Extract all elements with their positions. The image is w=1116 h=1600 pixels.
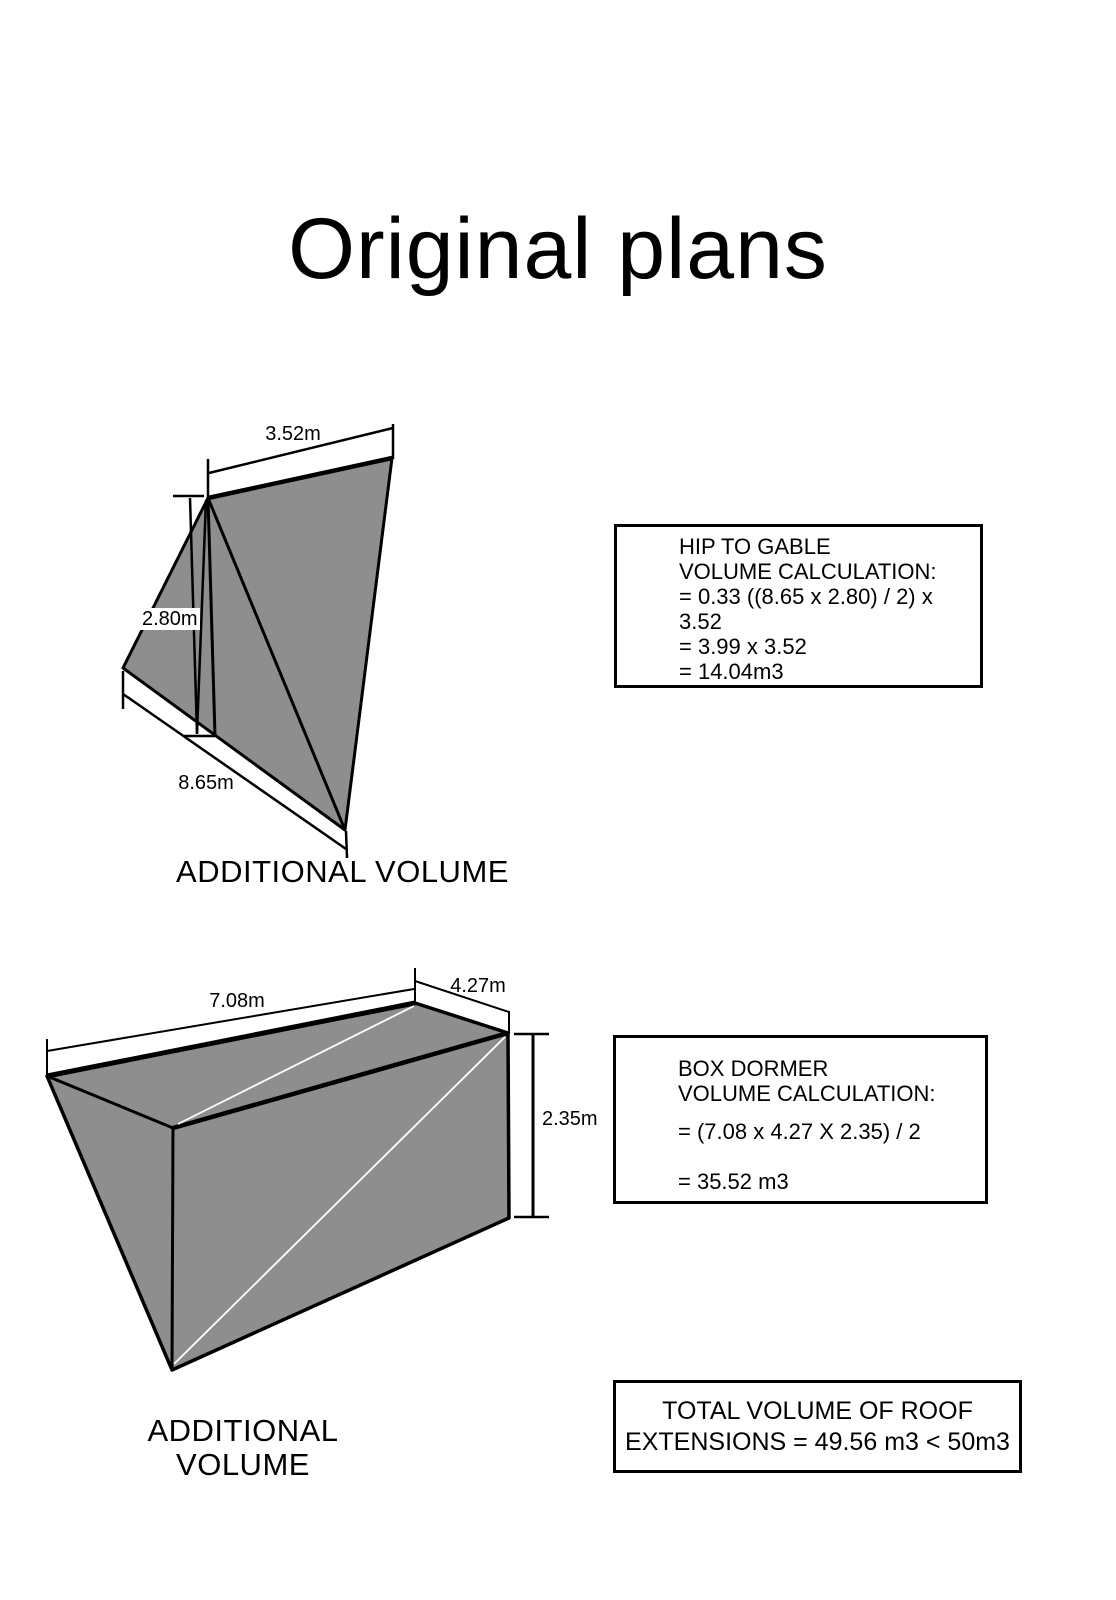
calc-heading: BOX DORMER — [678, 1056, 979, 1081]
dim-label-bottom-width: 8.65m — [170, 772, 242, 794]
calc-heading: VOLUME CALCULATION: — [678, 1081, 979, 1106]
hip-to-gable-body — [123, 458, 392, 830]
calc-step: = 0.33 ((8.65 x 2.80) / 2) x 3.52 — [679, 584, 974, 634]
hip-to-gable-calc-box: HIP TO GABLE VOLUME CALCULATION: = 0.33 … — [614, 524, 983, 688]
hip-to-gable-caption: ADDITIONAL VOLUME — [170, 855, 515, 889]
dormer-front-corner-edge — [172, 1128, 173, 1370]
calc-step: = (7.08 x 4.27 X 2.35) / 2 — [678, 1119, 979, 1144]
total-volume-box: TOTAL VOLUME OF ROOF EXTENSIONS = 49.56 … — [613, 1380, 1022, 1473]
dim-label-top-width: 3.52m — [256, 423, 330, 445]
dim-label-height: 2.80m — [140, 608, 200, 630]
box-dormer-body — [47, 1003, 509, 1370]
dim-label-depth: 4.27m — [441, 975, 515, 997]
calc-heading: VOLUME CALCULATION: — [679, 559, 974, 584]
dim-label-length: 7.08m — [200, 990, 274, 1012]
box-dormer-caption: ADDITIONAL VOLUME — [78, 1414, 408, 1482]
page-title: Original plans — [0, 194, 1116, 304]
hip-to-gable-diagram — [123, 424, 393, 858]
box-dormer-diagram — [47, 968, 549, 1370]
calc-step: = 3.99 x 3.52 — [679, 634, 974, 659]
calc-heading: HIP TO GABLE — [679, 534, 974, 559]
total-line-2: EXTENSIONS = 49.56 m3 < 50m3 — [616, 1427, 1019, 1458]
box-dormer-calc-box: BOX DORMER VOLUME CALCULATION: = (7.08 x… — [613, 1035, 988, 1204]
calc-result: = 14.04m3 — [679, 659, 974, 684]
dim-label-dormer-height: 2.35m — [542, 1108, 612, 1130]
calc-result: = 35.52 m3 — [678, 1169, 979, 1194]
total-line-1: TOTAL VOLUME OF ROOF — [616, 1396, 1019, 1427]
